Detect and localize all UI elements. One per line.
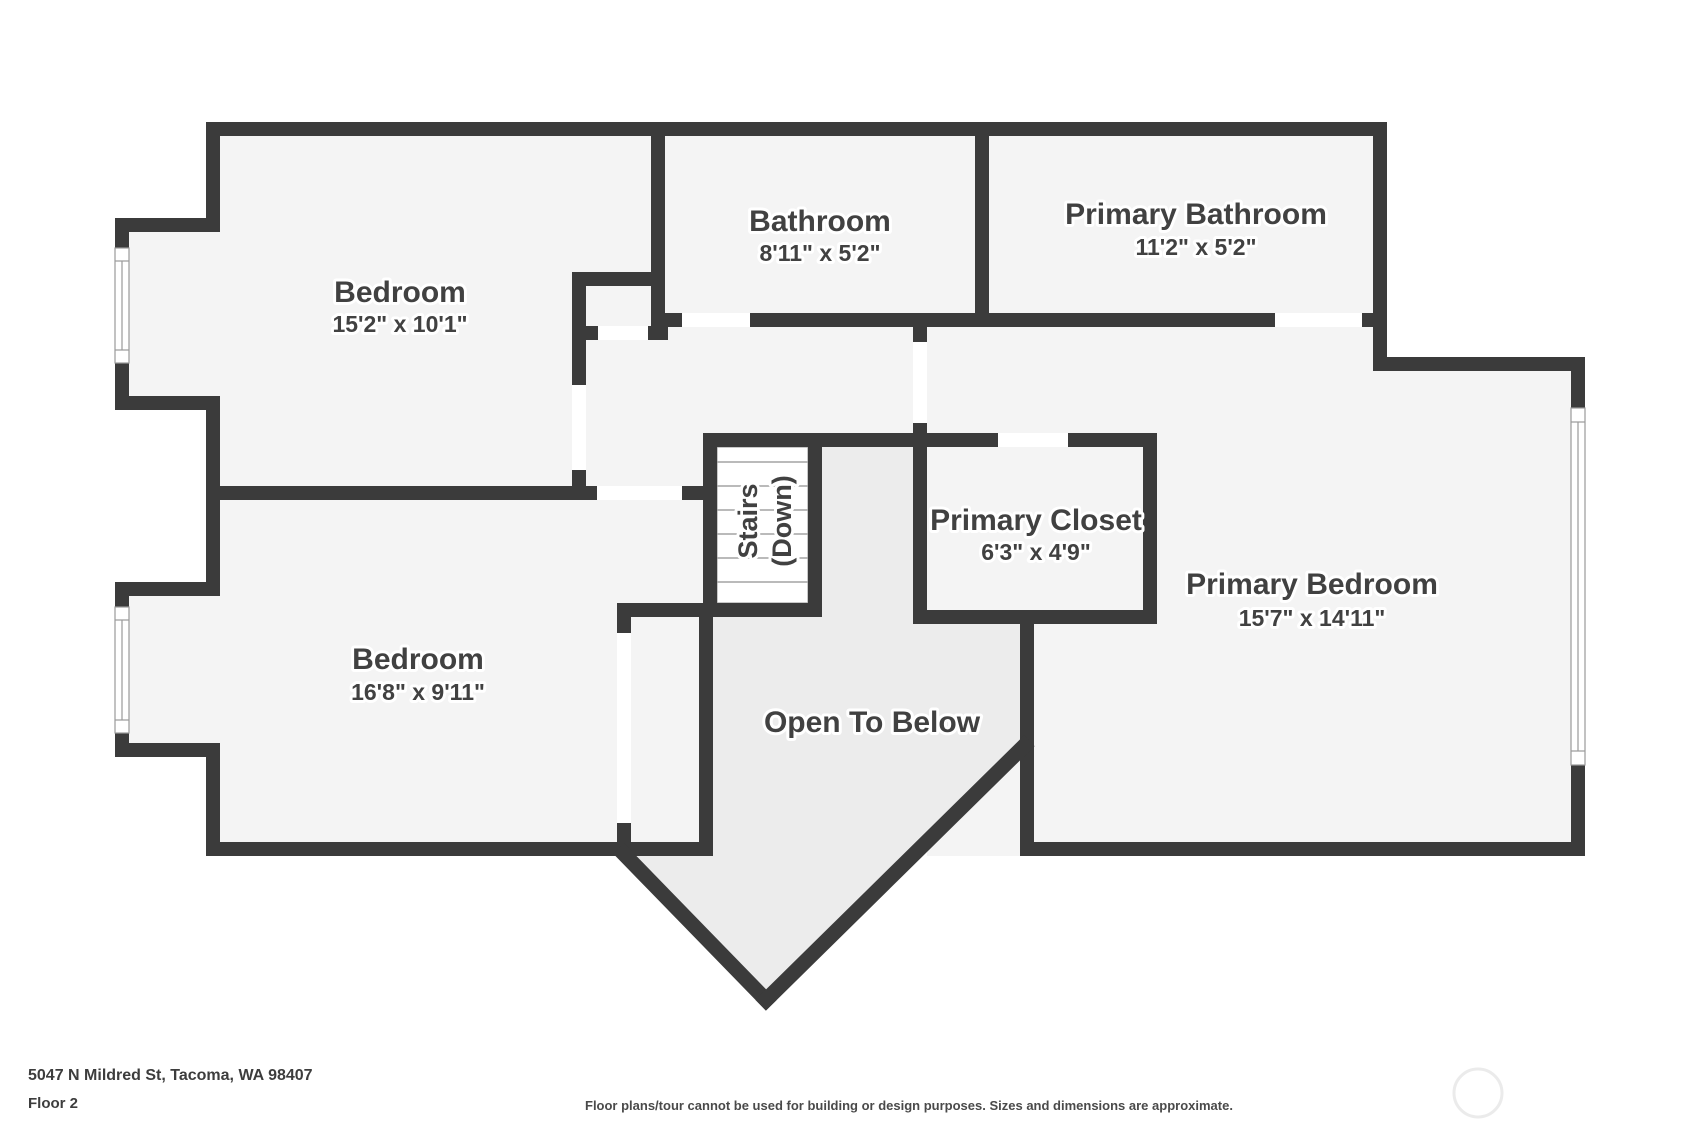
bathroom-label: Bathroom [749,205,891,238]
door-primary-bedroom [913,342,927,423]
opening-bedroom2-closet [617,633,631,823]
bedroom-1-label: Bedroom [334,276,466,309]
wall-stairs-closet-top-a [703,433,998,447]
window-primary-bedroom [1571,408,1585,765]
wall-stairs-bottom [617,603,822,617]
wall-bedrooms-divider-a [206,486,597,500]
door-nook [598,326,648,340]
stairs-label-line1: Stairs [733,483,763,558]
wall-bay1-left-a [115,218,129,248]
wall-bath-divider [975,122,989,327]
wall-bedroom2-bottom [206,842,713,856]
wall-hall-primary-a [913,327,927,342]
primary-bedroom-floor-east [1386,357,1571,856]
wall-stairs-right [808,433,822,617]
wall-bedroom1-hall-b [572,470,586,500]
bedroom-2-dims: 16'8" x 9'11" [351,679,485,705]
bathroom-dims: 8'11" x 5'2" [759,240,880,266]
primary-bathroom-dims: 11'2" x 5'2" [1135,234,1256,260]
wall-left-bed2-lower [206,743,220,856]
door-bathroom [682,313,750,327]
primary-bedroom-dims: 15'7" x 14'11" [1239,605,1386,631]
window-bedroom-1 [115,248,129,363]
wall-stairs-left [703,433,717,617]
door-primary-bathroom [1275,313,1362,327]
wall-bay2-top [115,582,220,596]
wall-bay1-top [115,218,220,232]
wall-closet-bottom [913,610,1157,624]
window-bedroom-2 [115,607,129,733]
watermark-logo-circle [1454,1069,1502,1117]
door-bedroom-1 [572,385,586,470]
wall-bay2-left-b [115,733,129,757]
wall-outer-right-b [1571,765,1585,856]
footer-disclaimer: Floor plans/tour cannot be used for buil… [585,1098,1233,1113]
wall-bay2-bottom [115,743,220,757]
wall-bay2-left-a [115,582,129,607]
wall-left-bed2-upper [206,486,220,596]
floor-plan-canvas: Bedroom 15'2" x 10'1" Bathroom 8'11" x 5… [0,0,1697,1131]
wall-bay1-bottom [115,396,220,410]
bedroom-1-bay-floor [115,218,220,410]
floor-plan-page: Bedroom 15'2" x 10'1" Bathroom 8'11" x 5… [0,0,1697,1131]
footer-floor-label: Floor 2 [28,1095,78,1112]
bedroom-1-dims: 15'2" x 10'1" [332,311,467,337]
wall-bedroom1-hall-a [572,272,586,385]
wall-primary-bedroom-bottom [1020,842,1585,856]
wall-primary-bedroom-top [1373,357,1585,371]
door-primary-closet [998,433,1068,447]
wall-left-mid [206,396,220,500]
footer: 5047 N Mildred St, Tacoma, WA 98407 Floo… [28,1067,1502,1117]
wall-outer-right-a [1571,357,1585,408]
wall-channel-left-a [617,617,631,633]
door-bedroom-2 [597,486,682,500]
wall-bedroom1-right [651,122,665,340]
wall-bath-bottom-b [750,313,1275,327]
wall-left-upper [206,122,220,232]
footer-address: 5047 N Mildred St, Tacoma, WA 98407 [28,1067,313,1084]
primary-bedroom-label: Primary Bedroom [1186,568,1438,601]
bedroom-2-label: Bedroom [352,643,484,676]
wall-channel-right [699,617,713,856]
wall-closet-left [913,433,927,624]
wall-top [206,122,1387,136]
stairs-label-line2: (Down) [767,475,797,566]
wall-primary-bath-right [1373,122,1387,371]
wall-bay1-left-b [115,363,129,410]
primary-closet-dims: 6'3" x 4'9" [981,539,1091,565]
open-to-below-label: Open To Below [764,706,981,739]
primary-closet-label: Primary Closet [930,504,1142,537]
wall-bath-bottom-a [665,313,682,327]
bedroom-2-bay-floor [115,582,220,757]
wall-closet-right [1143,433,1157,624]
primary-bathroom-label: Primary Bathroom [1065,198,1327,231]
